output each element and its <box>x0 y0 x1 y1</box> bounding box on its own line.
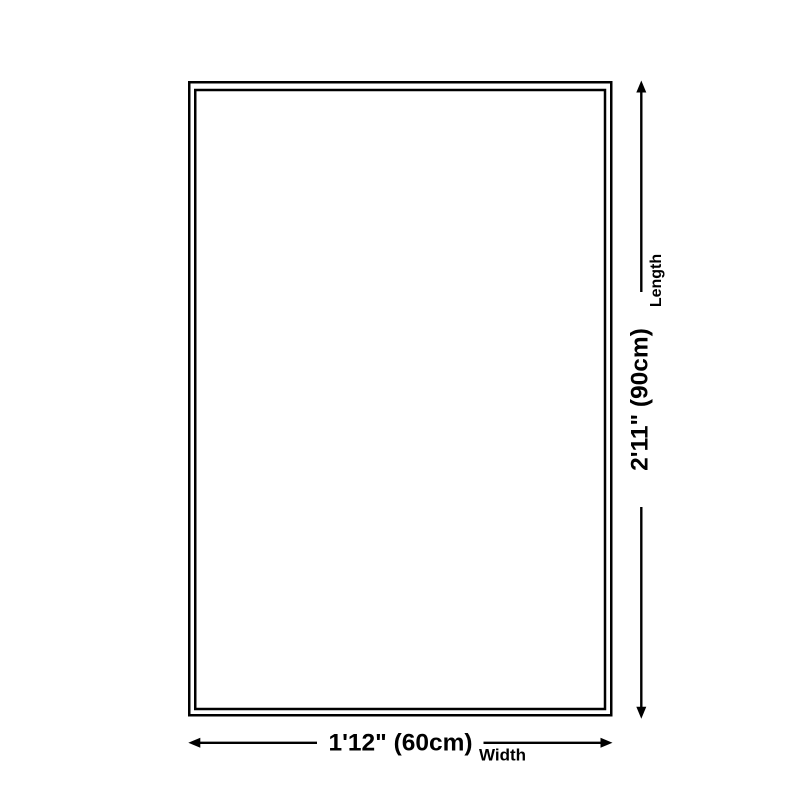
svg-text:1'12" (60cm): 1'12" (60cm) <box>328 730 472 757</box>
svg-text:Width: Width <box>479 746 526 765</box>
svg-text:Length: Length <box>648 254 665 307</box>
svg-text:2'11" (90cm): 2'11" (90cm) <box>627 328 654 471</box>
